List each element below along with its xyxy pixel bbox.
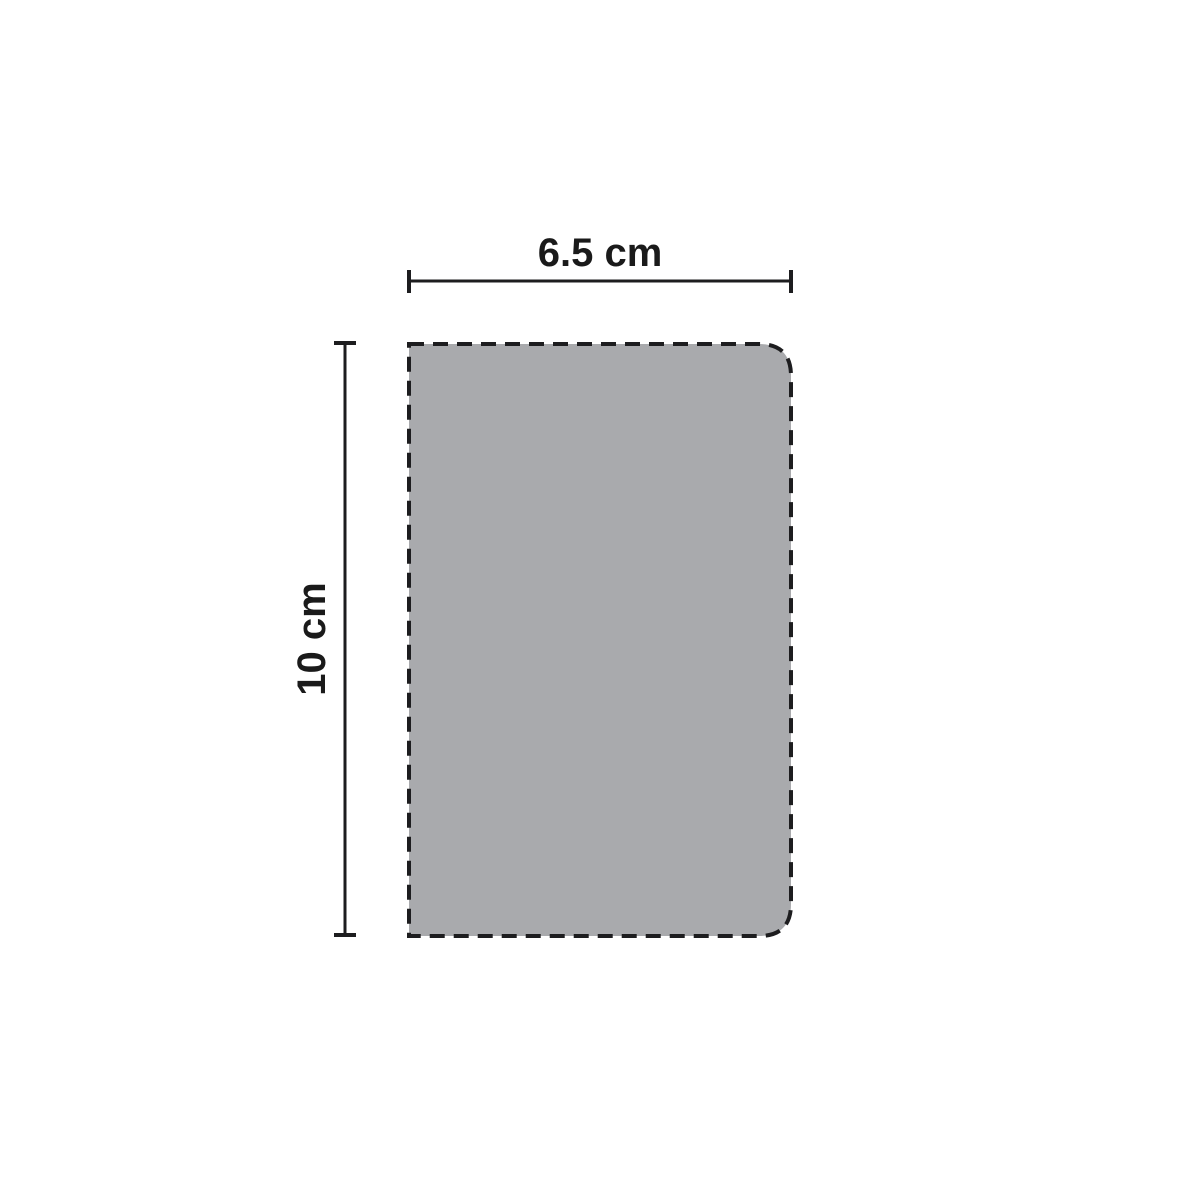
diagram-canvas: 6.5 cm 10 cm [0,0,1200,1200]
height-dimension-label: 10 cm [292,582,332,695]
card-shape [409,344,791,936]
width-dimension-label: 6.5 cm [409,233,791,273]
height-dimension-line [334,343,356,935]
dimension-diagram [0,0,1200,1200]
